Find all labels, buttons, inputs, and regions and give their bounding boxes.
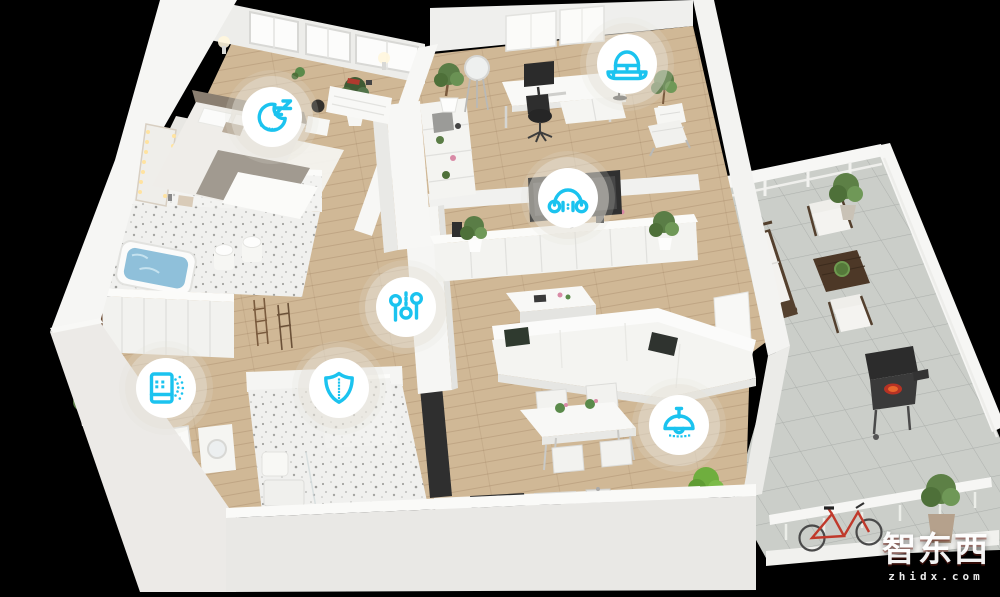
smart-home-floorplan-image: 智东西 zhidx.com [0, 0, 1000, 597]
sofa-pillow-dark [504, 327, 530, 347]
hotspot-air-purifier[interactable] [119, 341, 213, 435]
hotspot-hat[interactable] [580, 17, 674, 111]
watermark-domain: zhidx.com [888, 570, 984, 583]
floorplan-scene [0, 0, 1000, 597]
watermark: 智东西 zhidx.com [882, 533, 990, 583]
shelf-panel [432, 111, 454, 133]
vanity-stool [177, 195, 193, 207]
hotspot-controls[interactable] [359, 260, 453, 354]
hotspot-shield[interactable] [292, 341, 386, 435]
hotspot-sleep[interactable] [225, 70, 319, 164]
plant-bowl [835, 262, 849, 276]
shower-tray [264, 480, 304, 506]
toilet-second [262, 452, 288, 476]
watermark-brand: 智东西 [882, 533, 990, 567]
bidet [242, 237, 262, 263]
toilet [214, 245, 234, 271]
hotspot-lamp[interactable] [632, 378, 726, 472]
washing-machine [198, 424, 236, 474]
hotspot-headphones[interactable] [521, 151, 615, 245]
